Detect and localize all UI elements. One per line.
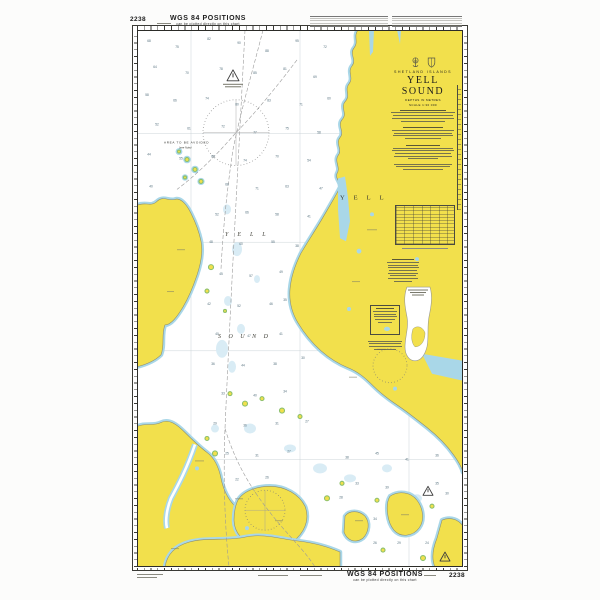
sounding-depth: 47 — [319, 186, 323, 190]
top-right-note-block-1 — [310, 16, 388, 27]
sounding-depth: 64 — [153, 65, 157, 69]
sounding-depth: 27 — [287, 449, 291, 453]
sounding-depth: 80 — [235, 103, 239, 107]
sounding-depth: 44 — [147, 153, 151, 157]
sounding-depth: 26 — [373, 541, 377, 545]
sounding-depth: 68 — [225, 182, 229, 186]
land-notes-column — [385, 256, 421, 282]
tidal-streams-table — [395, 205, 455, 245]
shield-crest-icon — [427, 57, 436, 68]
top-right-note-block-2 — [392, 16, 462, 27]
southeast-island-1 — [344, 512, 368, 541]
sound-label-yell: YELL — [225, 232, 275, 238]
sounding-depth: 29 — [213, 422, 217, 426]
wgs84-title-top: WGS 84 POSITIONS — [142, 15, 274, 22]
sounding-depth: 66 — [211, 155, 215, 159]
area-note-label: (see Note) — [179, 146, 192, 150]
chart-scan-page: { "chart": { "number": "2238", "margins"… — [0, 0, 600, 600]
land-notes-lower — [366, 339, 404, 350]
depths-note: DEPTHS IN METRES — [384, 98, 462, 102]
sounding-depth: 72 — [221, 125, 225, 129]
sounding-depth: 30 — [301, 356, 305, 360]
sounding-depth: 88 — [265, 49, 269, 53]
sounding-depth: 85 — [253, 71, 257, 75]
sounding-depth: 31 — [275, 422, 279, 426]
sounding-depth: 26 — [265, 475, 269, 479]
chart-number-bottom-right: 2238 — [449, 572, 465, 579]
sounding-depth: 58 — [275, 212, 279, 216]
sounding-depth: 82 — [207, 37, 211, 41]
sounding-depth: 46 — [269, 302, 273, 306]
crest-row — [384, 57, 462, 68]
sounding-depth: 52 — [155, 123, 159, 127]
yell-island-label: YELL — [340, 194, 393, 201]
sounding-depth: 34 — [283, 390, 287, 394]
sounding-depth: 52 — [215, 212, 219, 216]
sounding-depth: 74 — [205, 97, 209, 101]
top-margin-title-group: WGS 84 POSITIONS can be plotted directly… — [142, 15, 274, 26]
sounding-depth: 44 — [241, 364, 245, 368]
sounding-depth: 28 — [339, 495, 343, 499]
sounding-depth: 30 — [445, 491, 449, 495]
sounding-depth: 71 — [255, 186, 259, 190]
sounding-depth: 36 — [435, 453, 439, 457]
sounding-depth: 55 — [179, 157, 183, 161]
sounding-depth: 75 — [175, 45, 179, 49]
title-block-notes — [384, 110, 462, 170]
sounding-depth: 72 — [323, 45, 327, 49]
wgs84-subtitle-top: can be plotted directly on this chart — [142, 22, 274, 26]
sounding-depth: 35 — [283, 298, 287, 302]
sounding-depth: 70 — [275, 155, 279, 159]
sounding-depth: 40 — [253, 394, 257, 398]
sounding-depth: 52 — [237, 304, 241, 308]
anchor-crest-icon — [411, 57, 420, 68]
sounding-depth: 38 — [295, 244, 299, 248]
sounding-depth: 36 — [243, 424, 247, 428]
sounding-depth: 83 — [267, 99, 271, 103]
sounding-depth: 39 — [385, 485, 389, 489]
sounding-depth: 38 — [273, 362, 277, 366]
region-title: SHETLAND ISLANDS — [384, 70, 462, 74]
sounding-depth: 95 — [295, 39, 299, 43]
sounding-depth: 57 — [249, 274, 253, 278]
wgs84-subtitle-bottom: can be plotted directly on this chart — [330, 578, 440, 582]
sounding-depth: 69 — [313, 75, 317, 79]
northmavine-peninsula — [137, 199, 202, 367]
sounding-depth: 60 — [327, 97, 331, 101]
sounding-depth: 24 — [425, 541, 429, 545]
note-panel — [370, 305, 400, 335]
sounding-depth: 66 — [245, 210, 249, 214]
sounding-depth: 55 — [271, 240, 275, 244]
sounding-depth: 71 — [299, 103, 303, 107]
bottom-left-note-2 — [137, 577, 157, 578]
bottom-margin-note-2 — [300, 575, 322, 576]
sounding-depth: 54 — [307, 159, 311, 163]
sounding-depth: 70 — [185, 71, 189, 75]
sounding-depth: 29 — [397, 541, 401, 545]
sounding-depth: 22 — [235, 477, 239, 481]
sounding-depth: 34 — [373, 517, 377, 521]
sounding-depth: 36 — [211, 362, 215, 366]
sounding-depth: 78 — [219, 67, 223, 71]
sounding-depth: 58 — [317, 131, 321, 135]
sounding-depth: 60 — [239, 242, 243, 246]
sounding-depth: 49 — [279, 270, 283, 274]
sounding-depth: 41 — [405, 457, 409, 461]
sounding-depth: 48 — [209, 240, 213, 244]
sounding-depth: 45 — [375, 451, 379, 455]
graduation-band-right — [464, 30, 468, 567]
sounding-depth: 74 — [243, 159, 247, 163]
sounding-depth: 25 — [225, 451, 229, 455]
sounding-depth: 77 — [253, 131, 257, 135]
area-to-be-avoided-label: AREA TO BE AVOIDED — [164, 141, 209, 145]
sounding-depth: 31 — [255, 453, 259, 457]
sound-label-sound: SOUND — [218, 334, 275, 340]
sounding-depth: 40 — [149, 184, 153, 188]
sounding-depth: 68 — [147, 39, 151, 43]
sounding-depth: 38 — [345, 455, 349, 459]
chart-title: YELL SOUND — [384, 75, 462, 97]
bottom-margin-note-3 — [424, 575, 436, 576]
bottom-left-note-1 — [137, 574, 163, 575]
southeast-corner-island — [433, 519, 463, 567]
sounding-depth: 75 — [285, 127, 289, 131]
scale-note: SCALE 1:30 000 — [384, 103, 462, 107]
sounding-depth: 35 — [435, 481, 439, 485]
bottom-margin-note-1 — [258, 575, 288, 576]
chart-title-block: SHETLAND ISLANDS YELL SOUND DEPTHS IN ME… — [384, 57, 462, 170]
sounding-depth: 27 — [305, 420, 309, 424]
bottom-margin-title-group: WGS 84 POSITIONS can be plotted directly… — [330, 571, 440, 582]
sounding-depth: 33 — [221, 392, 225, 396]
sounding-depth: 58 — [145, 93, 149, 97]
sounding-depth: 42 — [207, 302, 211, 306]
sounding-depth: 81 — [283, 67, 287, 71]
sounding-depth: 41 — [279, 332, 283, 336]
sounding-depth: 90 — [237, 41, 241, 45]
latitude-scale-ruler — [457, 85, 461, 210]
sounding-depth: 33 — [355, 481, 359, 485]
sounding-depth: 61 — [187, 127, 191, 131]
sounding-depth: 45 — [219, 272, 223, 276]
sounding-depth: 63 — [285, 184, 289, 188]
sounding-depth: 41 — [307, 214, 311, 218]
sounding-depth: 66 — [173, 99, 177, 103]
table-caption — [402, 248, 448, 249]
